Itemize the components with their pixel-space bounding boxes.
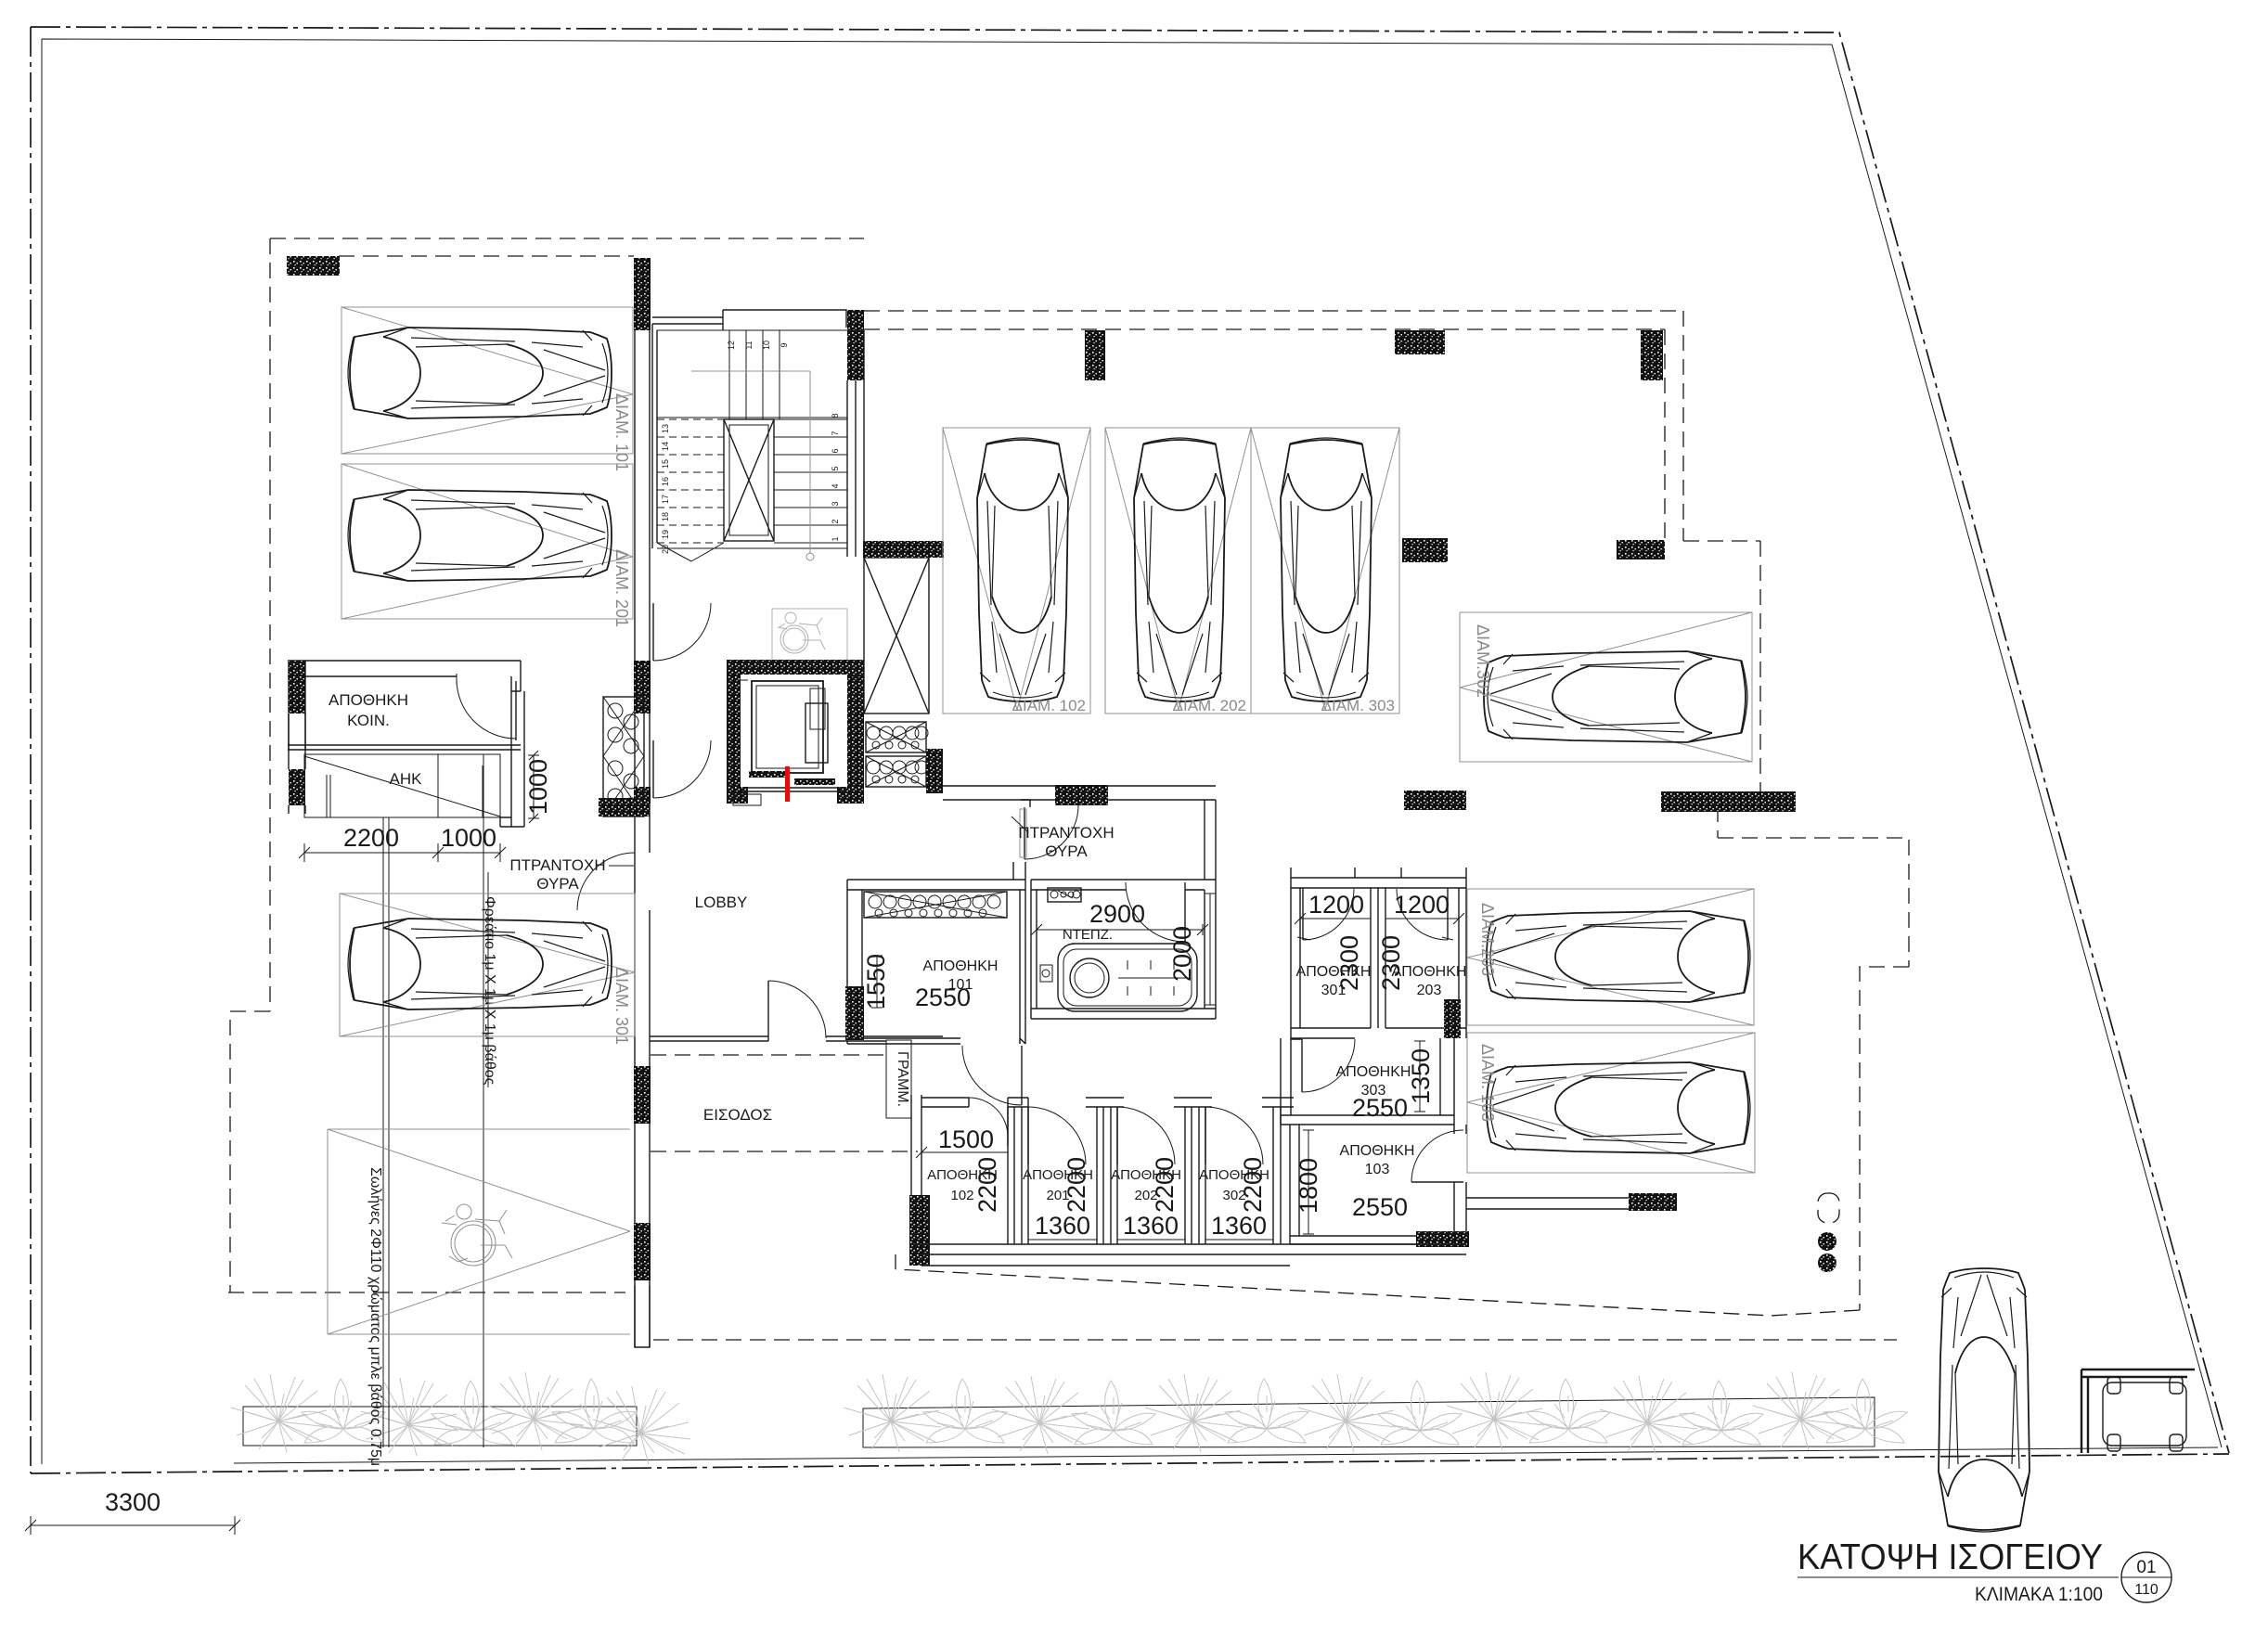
svg-text:1360: 1360	[1035, 1212, 1090, 1240]
svg-text:1200: 1200	[1308, 891, 1364, 919]
svg-text:15: 15	[661, 459, 670, 469]
svg-text:2550: 2550	[915, 984, 971, 1011]
svg-text:14: 14	[661, 442, 670, 451]
svg-text:ΑΠΟΘΗΚΗ: ΑΠΟΘΗΚΗ	[1336, 1064, 1411, 1080]
svg-text:Σωλήνες 2Φ110 χρώματος μπλε βά: Σωλήνες 2Φ110 χρώματος μπλε βάθος 0.75μ	[367, 1167, 383, 1466]
svg-text:ΑΠΟΘΗΚΗ: ΑΠΟΘΗΚΗ	[1340, 1143, 1415, 1159]
svg-text:8: 8	[831, 413, 840, 418]
svg-text:301: 301	[1321, 983, 1347, 998]
svg-text:ΑΠΟΘΗΚΗ: ΑΠΟΘΗΚΗ	[923, 958, 999, 974]
svg-text:2200: 2200	[343, 824, 399, 852]
svg-text:16: 16	[661, 477, 670, 486]
svg-text:5: 5	[831, 466, 840, 470]
svg-text:ΚΑΤΟΨΗ ΙΣΟΓΕΙΟΥ: ΚΑΤΟΨΗ ΙΣΟΓΕΙΟΥ	[1798, 1537, 2103, 1577]
svg-text:ΔΙΑΜ. 103: ΔΙΑΜ. 103	[1478, 1044, 1497, 1122]
svg-text:12: 12	[727, 341, 736, 350]
svg-text:1550: 1550	[862, 954, 890, 1009]
svg-text:ΔΙΑΜ. 102: ΔΙΑΜ. 102	[1012, 697, 1086, 714]
svg-text:17: 17	[661, 495, 670, 504]
svg-text:ΠΤΡΑΝΤΟΧΗ: ΠΤΡΑΝΤΟΧΗ	[509, 856, 605, 874]
svg-text:ΔΙΑΜ.203: ΔΙΑΜ.203	[1478, 903, 1497, 976]
svg-text:9: 9	[780, 342, 789, 347]
svg-text:ΔΙΑΜ.302: ΔΙΑΜ.302	[1474, 624, 1492, 698]
svg-text:ΑΗΚ: ΑΗΚ	[390, 770, 423, 788]
svg-text:11: 11	[744, 341, 754, 349]
svg-text:1200: 1200	[1394, 891, 1450, 919]
svg-text:110: 110	[2134, 1582, 2158, 1598]
svg-text:ΑΠΟΘΗΚΗ: ΑΠΟΘΗΚΗ	[329, 691, 408, 709]
svg-text:ΠΤΡΑΝΤΟΧΗ: ΠΤΡΑΝΤΟΧΗ	[1018, 824, 1114, 842]
svg-text:2200: 2200	[1063, 1157, 1090, 1213]
svg-text:1360: 1360	[1123, 1212, 1179, 1240]
svg-text:10: 10	[762, 341, 771, 350]
svg-text:1000: 1000	[524, 759, 552, 815]
svg-text:203: 203	[1417, 983, 1442, 998]
svg-text:01: 01	[2136, 1558, 2156, 1577]
svg-text:1350: 1350	[1407, 1048, 1435, 1104]
svg-text:ΔΙΑΜ. 201: ΔΙΑΜ. 201	[612, 549, 631, 627]
svg-text:102: 102	[950, 1188, 973, 1203]
svg-text:Φρεάτιο 1μ Χ 1μ Χ 1μ βάθος: Φρεάτιο 1μ Χ 1μ Χ 1μ βάθος	[482, 896, 497, 1086]
svg-text:7: 7	[831, 431, 840, 435]
svg-text:13: 13	[661, 424, 670, 433]
svg-text:2200: 2200	[973, 1157, 1001, 1213]
svg-text:20: 20	[661, 545, 670, 554]
svg-text:ΔΙΑΜ. 303: ΔΙΑΜ. 303	[1321, 697, 1395, 714]
svg-text:4: 4	[831, 483, 840, 488]
svg-text:LOBBY: LOBBY	[695, 894, 748, 911]
svg-text:ΓΡΑΜΜ.: ΓΡΑΜΜ.	[895, 1051, 910, 1107]
svg-text:ΔΙΑΜ. 301: ΔΙΑΜ. 301	[612, 967, 631, 1045]
svg-text:6: 6	[831, 448, 840, 453]
svg-text:1: 1	[831, 536, 840, 541]
svg-text:ΕΙΣΟΔΟΣ: ΕΙΣΟΔΟΣ	[703, 1106, 772, 1124]
svg-text:3: 3	[831, 501, 840, 506]
svg-text:2900: 2900	[1089, 900, 1145, 928]
svg-text:2000: 2000	[1168, 926, 1196, 982]
svg-text:1500: 1500	[938, 1125, 994, 1153]
svg-text:103: 103	[1365, 1162, 1390, 1177]
svg-text:ΘΥΡΑ: ΘΥΡΑ	[536, 875, 579, 893]
svg-text:2550: 2550	[1352, 1094, 1408, 1122]
svg-text:ΑΠΟΘΗΚΗ: ΑΠΟΘΗΚΗ	[1296, 964, 1372, 980]
svg-text:ΔΙΑΜ. 202: ΔΙΑΜ. 202	[1173, 697, 1246, 714]
svg-text:2200: 2200	[1239, 1157, 1267, 1213]
svg-text:ΑΠΟΘΗΚΗ: ΑΠΟΘΗΚΗ	[1392, 964, 1467, 980]
svg-text:2: 2	[831, 519, 840, 523]
svg-text:2550: 2550	[1352, 1193, 1408, 1221]
svg-text:3300: 3300	[105, 1488, 161, 1516]
svg-text:19: 19	[661, 530, 670, 539]
svg-text:1000: 1000	[441, 824, 496, 852]
svg-text:1360: 1360	[1211, 1212, 1267, 1240]
svg-text:ΚΟΙΝ.: ΚΟΙΝ.	[347, 712, 390, 729]
svg-text:2300: 2300	[1377, 935, 1405, 991]
svg-text:2200: 2200	[1151, 1157, 1179, 1213]
svg-text:18: 18	[661, 512, 670, 521]
svg-text:ΚΛΙΜΑΚΑ 1:100: ΚΛΙΜΑΚΑ 1:100	[1975, 1584, 2103, 1605]
svg-text:ΘΥΡΑ: ΘΥΡΑ	[1045, 842, 1088, 860]
svg-text:ΔΙΑΜ. 101: ΔΙΑΜ. 101	[612, 393, 631, 471]
